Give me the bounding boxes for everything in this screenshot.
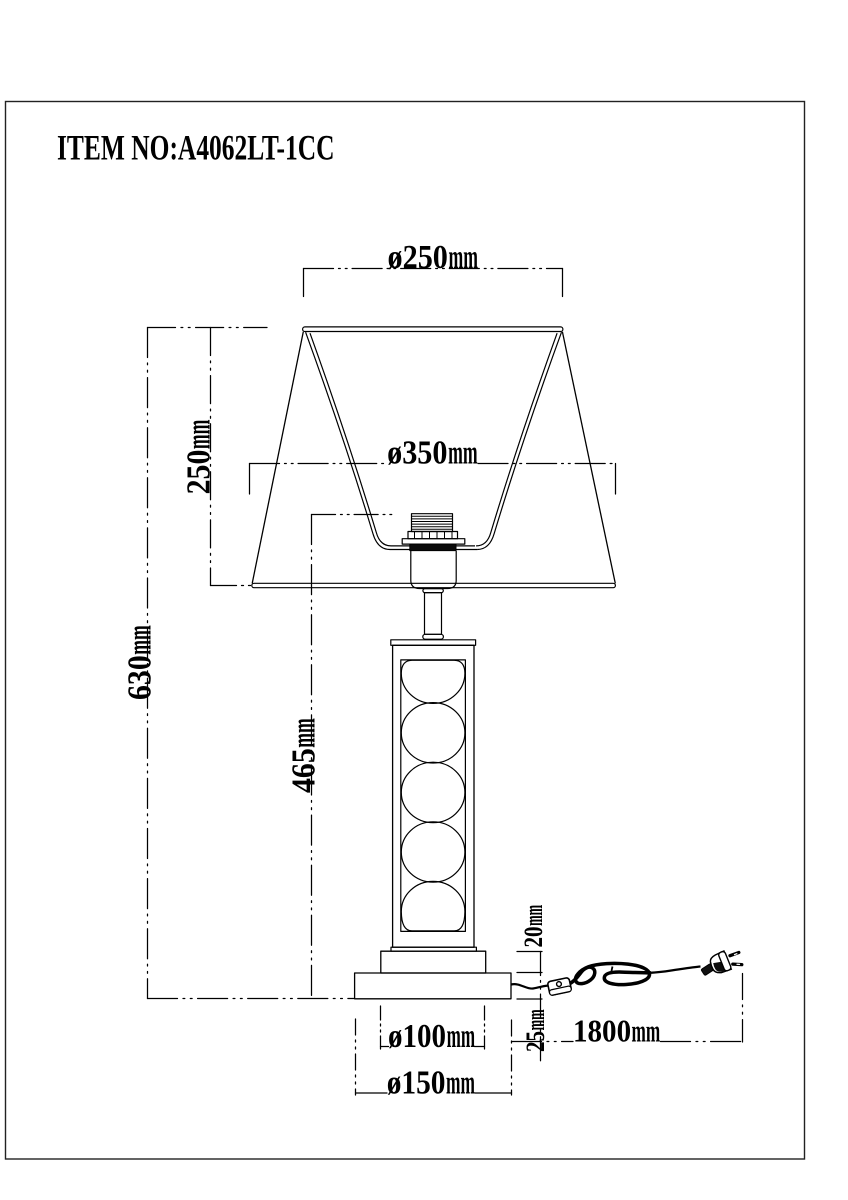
svg-text:ø250: ø250 <box>388 239 448 276</box>
svg-text:mm: mm <box>521 1009 550 1030</box>
svg-text:ITEM NO:A4062LT-1CC: ITEM NO:A4062LT-1CC <box>57 127 335 167</box>
svg-text:ø100: ø100 <box>388 1018 446 1055</box>
svg-text:mm: mm <box>632 1013 661 1048</box>
svg-text:mm: mm <box>286 718 323 748</box>
svg-text:630: 630 <box>122 655 159 700</box>
svg-text:ø350: ø350 <box>387 434 447 471</box>
svg-text:ø150: ø150 <box>387 1065 446 1102</box>
svg-text:mm: mm <box>448 434 478 471</box>
svg-text:mm: mm <box>519 905 548 926</box>
svg-text:mm: mm <box>447 1018 476 1055</box>
svg-text:465: 465 <box>286 748 323 793</box>
svg-text:mm: mm <box>122 625 159 655</box>
svg-text:1800: 1800 <box>573 1013 631 1048</box>
svg-text:250: 250 <box>181 450 218 495</box>
svg-text:mm: mm <box>449 239 479 276</box>
svg-text:mm: mm <box>181 420 218 450</box>
svg-text:20: 20 <box>519 927 548 948</box>
svg-text:mm: mm <box>446 1065 475 1102</box>
svg-text:25: 25 <box>521 1031 550 1052</box>
